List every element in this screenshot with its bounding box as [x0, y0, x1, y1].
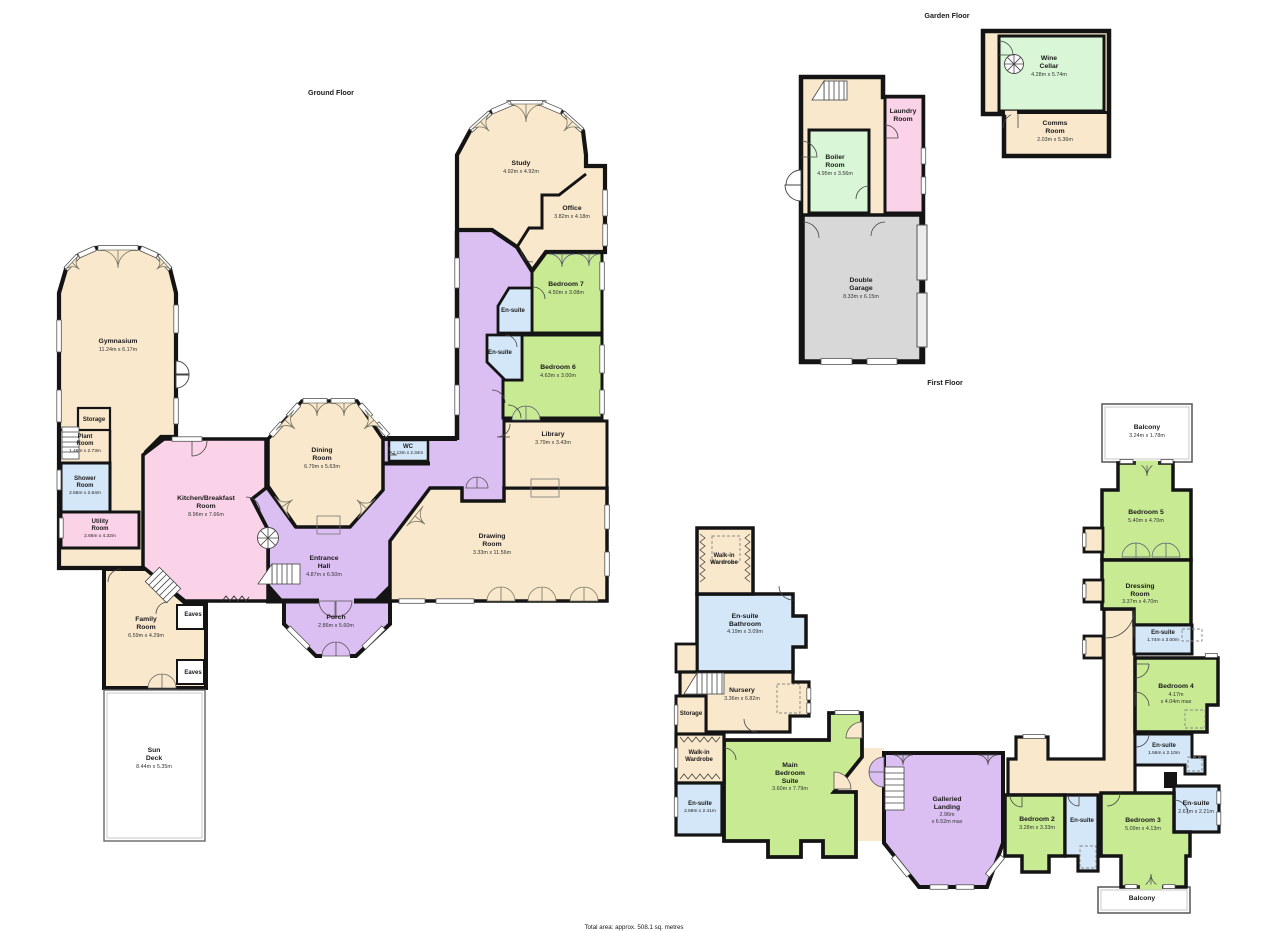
svg-text:1.13m x 2.34m: 1.13m x 2.34m — [393, 450, 424, 455]
svg-text:Eaves: Eaves — [184, 670, 202, 676]
svg-text:Comms: Comms — [1043, 120, 1068, 127]
svg-text:Porch: Porch — [326, 614, 345, 621]
svg-text:Drawing: Drawing — [479, 533, 506, 540]
svg-text:Suite: Suite — [782, 778, 799, 785]
svg-text:2.55m x 2.64m: 2.55m x 2.64m — [69, 490, 101, 496]
svg-text:Bedroom: Bedroom — [775, 770, 805, 777]
svg-text:3.24m x 1.78m: 3.24m x 1.78m — [1129, 433, 1165, 439]
svg-text:Shower: Shower — [74, 476, 96, 482]
svg-text:En-suite: En-suite — [501, 308, 525, 314]
svg-text:2.67m x 2.21m: 2.67m x 2.21m — [1178, 809, 1214, 815]
svg-text:Kitchen/Breakfast: Kitchen/Breakfast — [177, 495, 236, 502]
svg-text:Eaves: Eaves — [184, 612, 202, 618]
svg-text:4.50m x 3.08m: 4.50m x 3.08m — [548, 290, 584, 296]
svg-text:Bedroom 6: Bedroom 6 — [540, 364, 576, 371]
svg-text:3.60m x 7.79m: 3.60m x 7.79m — [772, 786, 808, 792]
svg-text:2.66m x 4.32m: 2.66m x 4.32m — [84, 533, 116, 539]
svg-text:3.82m x 4.18m: 3.82m x 4.18m — [554, 214, 590, 220]
svg-text:2.96m: 2.96m — [940, 812, 955, 818]
svg-text:1.56m x 2.10m: 1.56m x 2.10m — [1148, 750, 1180, 756]
svg-text:3.79m x 3.43m: 3.79m x 3.43m — [535, 440, 571, 446]
svg-text:Office: Office — [562, 205, 581, 212]
svg-text:Room: Room — [196, 503, 215, 510]
svg-text:Landing: Landing — [934, 804, 960, 811]
svg-text:Library: Library — [541, 431, 564, 438]
svg-text:Room: Room — [893, 116, 912, 123]
svg-text:Deck: Deck — [146, 755, 162, 762]
svg-text:Room: Room — [77, 483, 94, 489]
svg-text:Room: Room — [92, 526, 109, 532]
svg-text:3.36m x 6.82m: 3.36m x 6.82m — [724, 696, 760, 702]
svg-text:Dining: Dining — [311, 447, 332, 454]
svg-text:Total area: approx. 508.1 sq.: Total area: approx. 508.1 sq. metres — [584, 924, 683, 931]
svg-text:Room: Room — [825, 162, 844, 169]
svg-text:6.79m x 5.63m: 6.79m x 5.63m — [304, 464, 340, 470]
svg-text:x 4.04m max: x 4.04m max — [1161, 699, 1192, 705]
svg-text:Storage: Storage — [680, 711, 703, 717]
svg-text:Room: Room — [77, 441, 94, 447]
svg-text:2.59m x 2.41m: 2.59m x 2.41m — [684, 808, 716, 814]
svg-text:Storage: Storage — [83, 417, 106, 423]
svg-text:Room: Room — [482, 541, 501, 548]
svg-text:Family: Family — [135, 616, 157, 623]
svg-text:Room: Room — [312, 455, 331, 462]
svg-text:En-suite: En-suite — [488, 350, 512, 356]
svg-text:En-suite: En-suite — [688, 801, 712, 807]
svg-text:4.28m x 5.74m: 4.28m x 5.74m — [1031, 72, 1067, 78]
svg-text:Sun: Sun — [148, 747, 161, 754]
svg-text:6.59m x 4.29m: 6.59m x 4.29m — [128, 633, 164, 639]
svg-text:Bedroom 5: Bedroom 5 — [1128, 509, 1164, 516]
svg-text:Bedroom 7: Bedroom 7 — [548, 281, 584, 288]
svg-text:1.46m x 2.73m: 1.46m x 2.73m — [69, 448, 101, 454]
svg-text:En-suite: En-suite — [1070, 818, 1094, 824]
svg-text:Bedroom 3: Bedroom 3 — [1125, 817, 1161, 824]
svg-text:Plant: Plant — [78, 434, 93, 440]
svg-text:2.86m x 5.60m: 2.86m x 5.60m — [318, 623, 354, 629]
svg-text:8.33m x 6.15m: 8.33m x 6.15m — [843, 294, 879, 300]
svg-text:Wardrobe: Wardrobe — [710, 560, 738, 566]
svg-text:4.17m: 4.17m — [1169, 692, 1184, 698]
svg-text:5.09m x 4.13m: 5.09m x 4.13m — [1125, 826, 1161, 832]
svg-text:Bedroom 2: Bedroom 2 — [1019, 816, 1055, 823]
svg-text:Gymnasium: Gymnasium — [99, 338, 138, 345]
svg-text:Cellar: Cellar — [1040, 63, 1059, 70]
svg-text:Galleried: Galleried — [932, 796, 961, 803]
svg-text:2.03m x 5.36m: 2.03m x 5.36m — [1037, 137, 1073, 143]
svg-text:Balcony: Balcony — [1134, 424, 1161, 431]
svg-text:Walk-in: Walk-in — [688, 750, 709, 756]
svg-text:Main: Main — [782, 762, 797, 769]
svg-text:En-suite: En-suite — [1152, 743, 1176, 749]
svg-text:Room: Room — [1130, 591, 1149, 598]
svg-text:Hall: Hall — [318, 563, 331, 570]
svg-text:Double: Double — [849, 277, 872, 284]
svg-text:11.24m x 6.17m: 11.24m x 6.17m — [99, 347, 138, 353]
svg-text:First Floor: First Floor — [927, 378, 963, 387]
svg-text:Dressing: Dressing — [1125, 583, 1154, 590]
svg-text:4.19m x 3.09m: 4.19m x 3.09m — [727, 629, 763, 635]
svg-text:Wine: Wine — [1041, 55, 1057, 62]
svg-text:Laundry: Laundry — [890, 108, 917, 115]
svg-text:Entrance: Entrance — [309, 555, 338, 562]
svg-text:8.44m x 5.35m: 8.44m x 5.35m — [136, 764, 172, 770]
svg-text:Room: Room — [1045, 128, 1064, 135]
svg-text:3.37m x 4.70m: 3.37m x 4.70m — [1122, 599, 1158, 605]
svg-text:En-suite: En-suite — [732, 613, 759, 620]
svg-text:Bathroom: Bathroom — [729, 621, 761, 628]
svg-text:5.40m x 4.70m: 5.40m x 4.70m — [1128, 518, 1164, 524]
svg-text:Nursery: Nursery — [729, 687, 755, 694]
svg-text:Walk-in: Walk-in — [713, 553, 734, 559]
svg-text:Boiler: Boiler — [825, 154, 845, 161]
svg-text:Garage: Garage — [849, 285, 873, 292]
svg-text:4.63m x 3.00m: 4.63m x 3.00m — [540, 373, 576, 379]
svg-text:Ground Floor: Ground Floor — [308, 88, 354, 97]
svg-text:Room: Room — [136, 624, 155, 631]
svg-text:4.95m x 3.56m: 4.95m x 3.56m — [817, 171, 853, 177]
svg-text:Wardrobe: Wardrobe — [685, 757, 713, 763]
svg-text:Balcony: Balcony — [1129, 895, 1156, 902]
svg-text:Bedroom 4: Bedroom 4 — [1158, 683, 1194, 690]
svg-text:Study: Study — [512, 160, 531, 167]
svg-text:Garden Floor: Garden Floor — [924, 11, 969, 20]
svg-text:3.33m x 11.56m: 3.33m x 11.56m — [473, 550, 512, 556]
svg-text:8.96m x 7.66m: 8.96m x 7.66m — [188, 512, 224, 518]
svg-text:Utility: Utility — [92, 519, 109, 525]
svg-text:1.74m x 3.00m: 1.74m x 3.00m — [1147, 637, 1179, 643]
svg-text:4.92m x 4.92m: 4.92m x 4.92m — [503, 169, 539, 175]
svg-text:En-suite: En-suite — [1151, 630, 1175, 636]
svg-text:En-suite: En-suite — [1183, 800, 1210, 807]
svg-text:3.28m x 3.33m: 3.28m x 3.33m — [1019, 825, 1055, 831]
svg-text:x 6.52m max: x 6.52m max — [932, 819, 963, 825]
svg-text:4.87m x 6.50m: 4.87m x 6.50m — [306, 572, 342, 578]
